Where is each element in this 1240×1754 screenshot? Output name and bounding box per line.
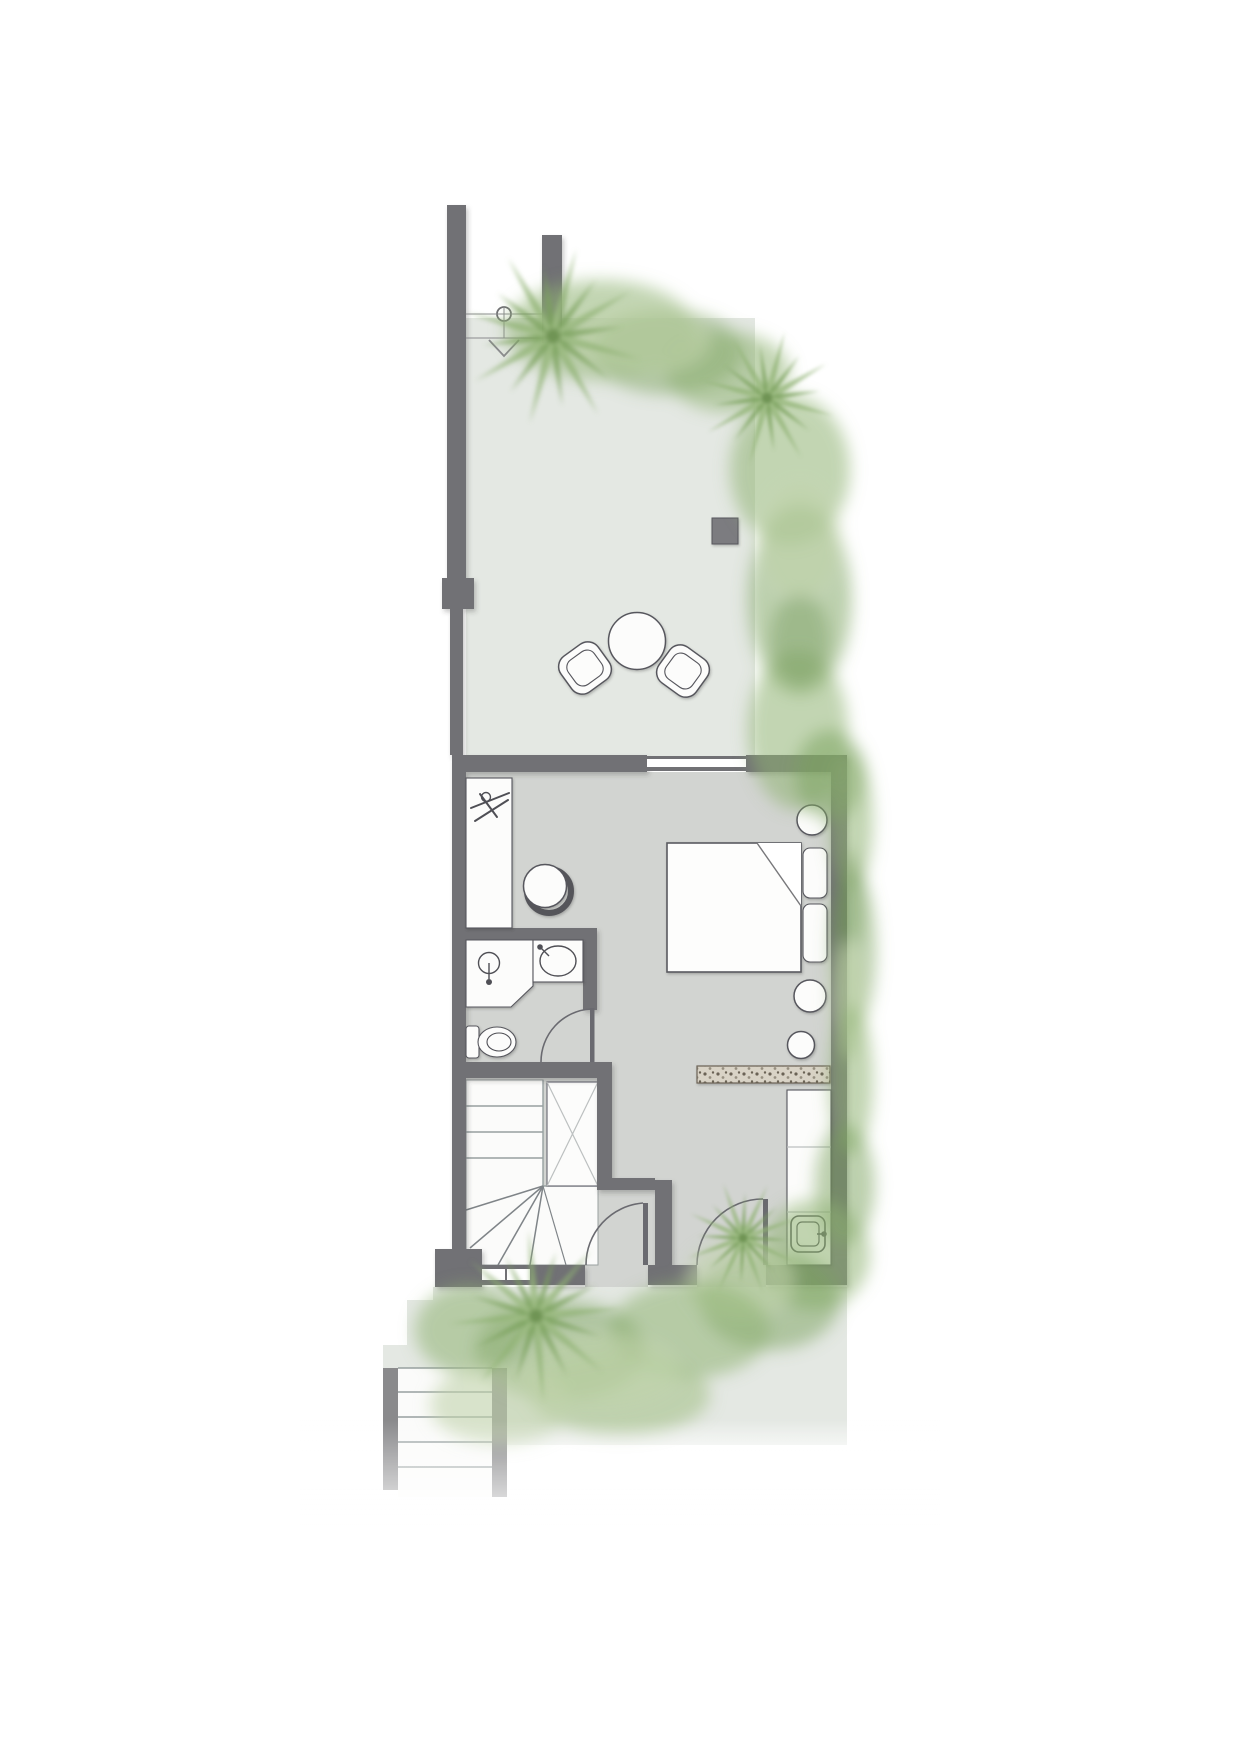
round-stool — [788, 1032, 815, 1059]
staircase — [466, 1080, 598, 1265]
planter-box — [712, 518, 738, 544]
west-wall-foot — [435, 1249, 482, 1287]
bathroom-south-wall — [452, 1062, 597, 1078]
hall-divider-wall — [597, 1062, 612, 1190]
west-wall — [452, 755, 466, 1249]
bathroom-north-wall — [452, 928, 597, 940]
stair-closet — [547, 1082, 598, 1186]
bathroom-east-wall — [583, 928, 597, 1010]
pillow — [803, 848, 827, 898]
pillow — [803, 904, 827, 962]
bedside-table — [794, 980, 826, 1012]
bedroom-window — [647, 756, 746, 771]
toilet — [466, 1026, 516, 1058]
entry-wall-stub — [655, 1180, 672, 1285]
hall-link-wall — [612, 1178, 655, 1190]
bottom-fade — [300, 1420, 940, 1560]
wardrobe — [466, 778, 512, 928]
stair-door-threshold — [585, 1265, 648, 1287]
floor-plan-page — [0, 0, 1240, 1754]
desk-chair — [524, 865, 572, 914]
floor-plan-drawing — [0, 0, 1240, 1754]
rug-runner — [697, 1066, 830, 1083]
outdoor-table — [609, 613, 666, 670]
